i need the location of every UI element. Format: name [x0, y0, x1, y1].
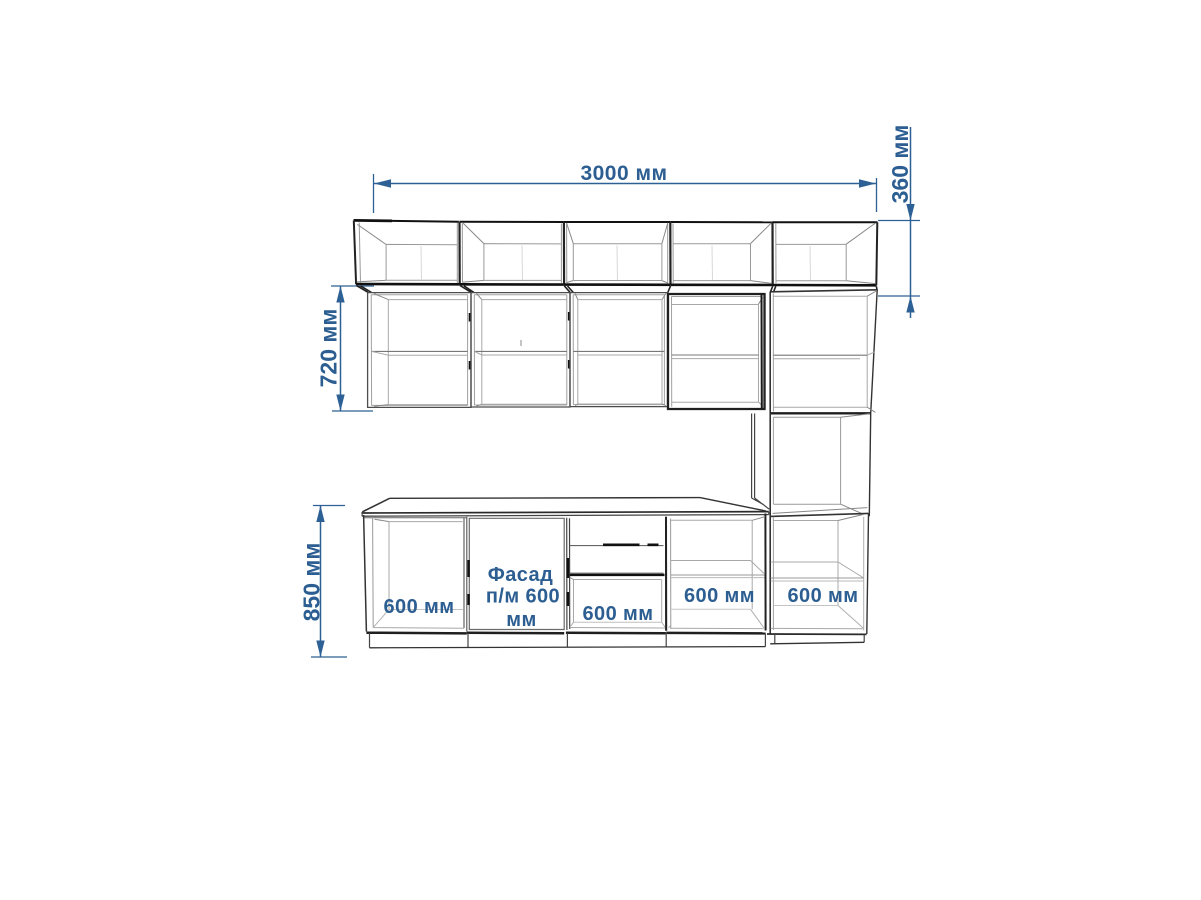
svg-text:600 мм: 600 мм	[788, 585, 859, 607]
svg-text:3000 мм: 3000 мм	[580, 162, 667, 185]
svg-text:Фасад: Фасад	[488, 564, 553, 586]
svg-text:360 мм: 360 мм	[887, 125, 913, 204]
svg-text:600 мм: 600 мм	[384, 596, 455, 618]
svg-text:600 мм: 600 мм	[583, 603, 654, 625]
svg-text:720 мм: 720 мм	[316, 309, 342, 388]
svg-text:п/м 600: п/м 600	[486, 586, 560, 608]
svg-text:850 мм: 850 мм	[299, 543, 325, 622]
svg-text:600 мм: 600 мм	[684, 585, 755, 607]
svg-text:мм: мм	[506, 609, 536, 631]
